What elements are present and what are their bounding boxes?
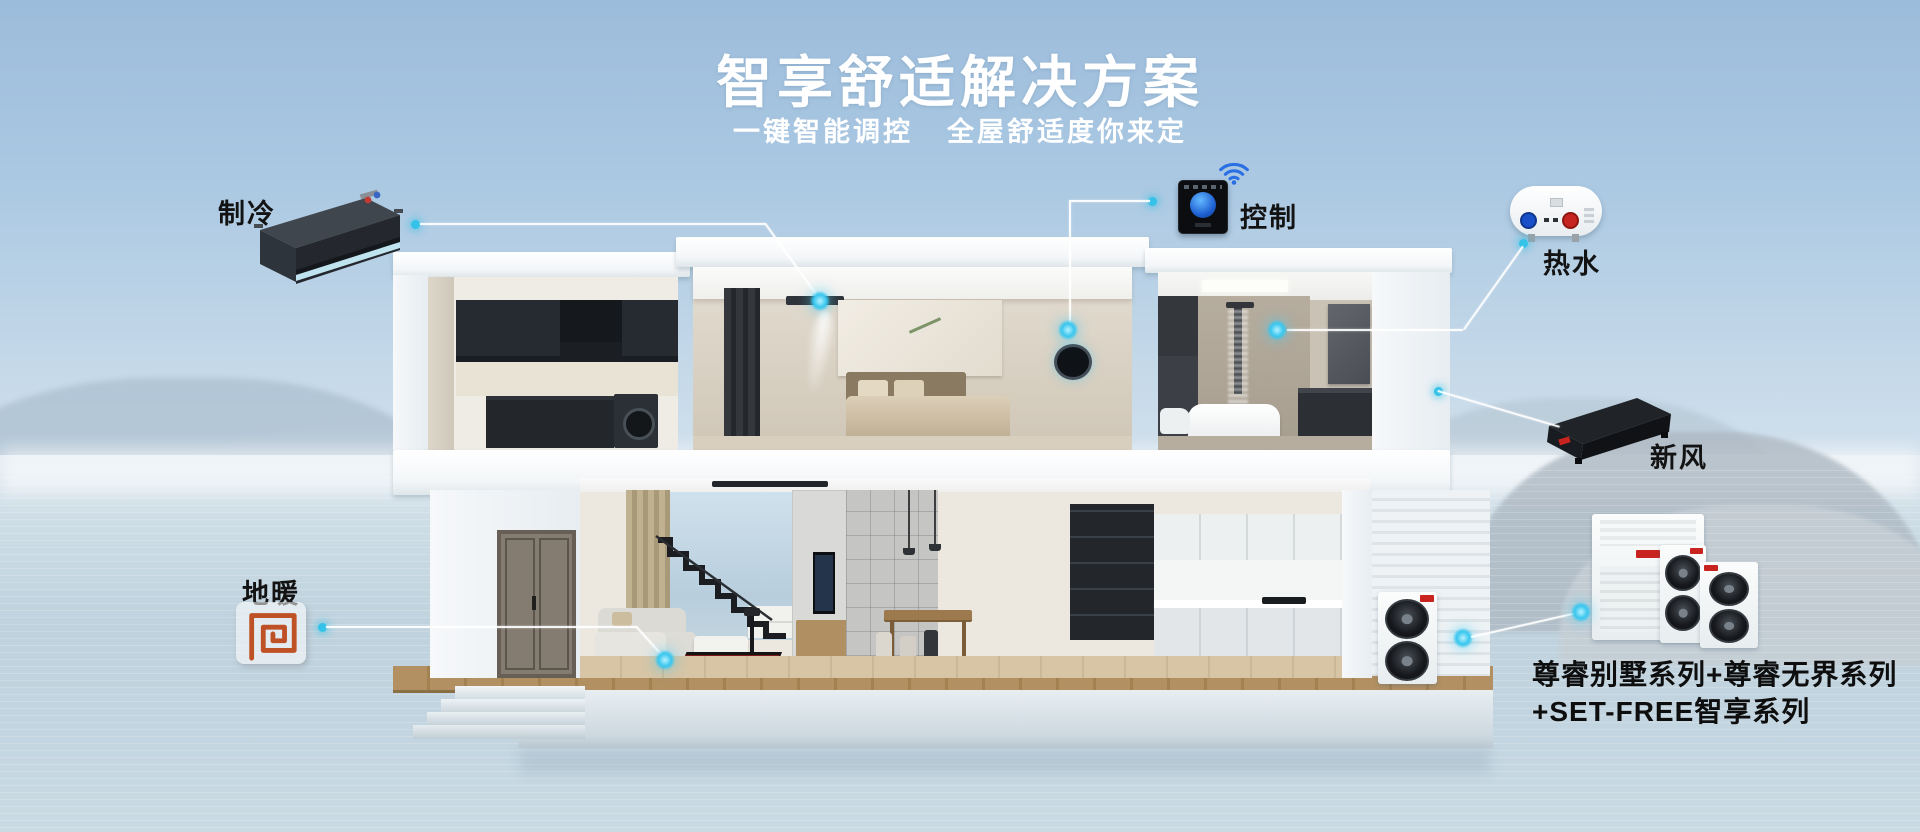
control-connector-line [1070, 200, 1150, 202]
floor2-left-wall [393, 275, 428, 450]
living-floor [580, 656, 1370, 678]
outdoor-unit-fan [1709, 609, 1749, 643]
thermostat-button-bar [1195, 223, 1211, 227]
living-ceiling [580, 478, 1370, 492]
floor-heating-connector-line [326, 626, 637, 628]
laundry-open-shelves [560, 300, 622, 362]
series-caption: 尊睿别墅系列+尊睿无界系列 +SET-FREE智享系列 [1532, 656, 1897, 730]
roof-right [1145, 248, 1452, 273]
outdoor-unit-fan [1665, 555, 1701, 591]
bathroom-artwork [1328, 304, 1370, 384]
series-caption-line1: 尊睿别墅系列+尊睿无界系列 [1532, 656, 1897, 693]
floor2-right-wall [1372, 272, 1450, 452]
laundry-backsplash [456, 362, 678, 396]
floor-lamp-pole [750, 612, 754, 652]
washer-door [623, 408, 655, 440]
heater-display [1550, 198, 1563, 207]
brand-logo-badge [1636, 550, 1660, 558]
heater-side-grille [1584, 208, 1594, 226]
outdoor-unit-twin-fan-b[interactable] [1700, 562, 1758, 648]
thermostat-status-row [1184, 185, 1222, 189]
entry-double-door[interactable] [497, 530, 576, 678]
bedroom-art-panel [838, 300, 1002, 376]
door-leaf-right [539, 538, 569, 670]
heater-switch-1 [1544, 218, 1549, 222]
toilet [1160, 408, 1190, 434]
step-4 [413, 725, 585, 739]
kitchen-backsplash [1154, 560, 1342, 600]
heater-leg-2 [1572, 234, 1579, 242]
roof-middle [676, 237, 1149, 267]
bathroom-light-panel [1202, 280, 1288, 292]
platform-reflection [520, 748, 1490, 774]
outdoor-unit-fan [1385, 599, 1429, 639]
kitchen-dark-shelving [1070, 504, 1154, 640]
brand-logo-badge [1690, 548, 1703, 554]
kitchen-counter [1154, 600, 1342, 608]
control-connector-vline [1069, 200, 1071, 330]
pendant-cord-1 [908, 490, 910, 548]
cooling-hotspot-glow[interactable] [810, 291, 830, 311]
bathroom-vanity [1298, 388, 1372, 436]
outdoor-unit-fan [1665, 595, 1701, 631]
heater-leg-1 [1528, 234, 1535, 242]
subtitle-right: 全屋舒适度你来定 [947, 117, 1187, 147]
kitchen-upper-cabinets [1154, 514, 1342, 560]
house-side-hotspot-glow[interactable] [1453, 628, 1473, 648]
wall-controller[interactable] [1054, 344, 1092, 380]
bedroom-curtain [724, 288, 760, 438]
roof-left [393, 252, 690, 277]
control-label: 控制 [1240, 196, 1298, 235]
outdoor-unit-fan [1385, 641, 1429, 681]
hot-water-connector-line [1287, 329, 1463, 331]
pendant-lamp-1 [903, 548, 915, 555]
floor-heating-hotspot-glow[interactable] [655, 650, 675, 670]
outdoor-units-hotspot-glow[interactable] [1571, 602, 1591, 622]
thermostat-dial [1190, 192, 1216, 218]
laundry-lower-cabinets [486, 396, 614, 448]
tv-screen [813, 552, 835, 614]
tv-console [796, 620, 850, 656]
smart-thermostat-panel[interactable] [1178, 180, 1228, 234]
kitchen-base-cabinets [1154, 608, 1342, 656]
laundry-stone-wall [428, 277, 454, 450]
art-branch [909, 317, 941, 334]
brand-logo-badge [1704, 565, 1718, 571]
outdoor-unit-small[interactable] [1378, 592, 1437, 684]
page-subtitle: 一键智能调控全屋舒适度你来定 [0, 110, 1920, 149]
floor1-right-wall [1342, 490, 1372, 678]
smart-comfort-banner: 智享舒适解决方案 一键智能调控全屋舒适度你来定 [0, 0, 1920, 832]
door-leaf-left [505, 538, 535, 670]
floor-heating-coil-icon[interactable] [240, 604, 302, 662]
hot-water-hotspot-glow[interactable] [1267, 320, 1287, 340]
ducted-indoor-unit[interactable] [248, 184, 413, 299]
series-caption-line2: +SET-FREE智享系列 [1532, 693, 1897, 730]
brand-logo-badge [1420, 595, 1434, 602]
storage-water-heater[interactable] [1510, 186, 1602, 236]
heater-cold-knob [1520, 212, 1537, 229]
outdoor-unit-fan [1709, 572, 1749, 606]
fresh-air-label: 新风 [1650, 436, 1708, 475]
door-handle [532, 596, 536, 610]
platform-base [518, 690, 1493, 748]
heater-hot-knob [1562, 212, 1579, 229]
page-title: 智享舒适解决方案 [0, 38, 1920, 119]
pendant-cord-2 [934, 490, 936, 544]
tv-picture [815, 555, 833, 611]
pendant-lamp-2 [929, 544, 941, 551]
cooling-connector-dot[interactable] [411, 220, 420, 229]
dining-table [884, 610, 972, 620]
cabinet-top-grille [1600, 520, 1696, 546]
sofa-pillow [612, 612, 632, 626]
dining-table-leg-2 [962, 620, 966, 658]
control-hotspot-glow[interactable] [1058, 320, 1078, 340]
cooktop [1262, 597, 1306, 604]
hot-water-label: 热水 [1543, 242, 1601, 281]
cooling-connector-line [420, 223, 766, 225]
floor-lamp-shade [744, 608, 760, 616]
subtitle-left: 一键智能调控 [733, 117, 913, 147]
washing-machine [614, 394, 658, 448]
step-2 [441, 699, 585, 712]
heater-switch-2 [1553, 218, 1558, 222]
step-3 [427, 712, 585, 725]
step-1 [455, 686, 585, 699]
living-linear-ac-diffuser [712, 481, 828, 487]
